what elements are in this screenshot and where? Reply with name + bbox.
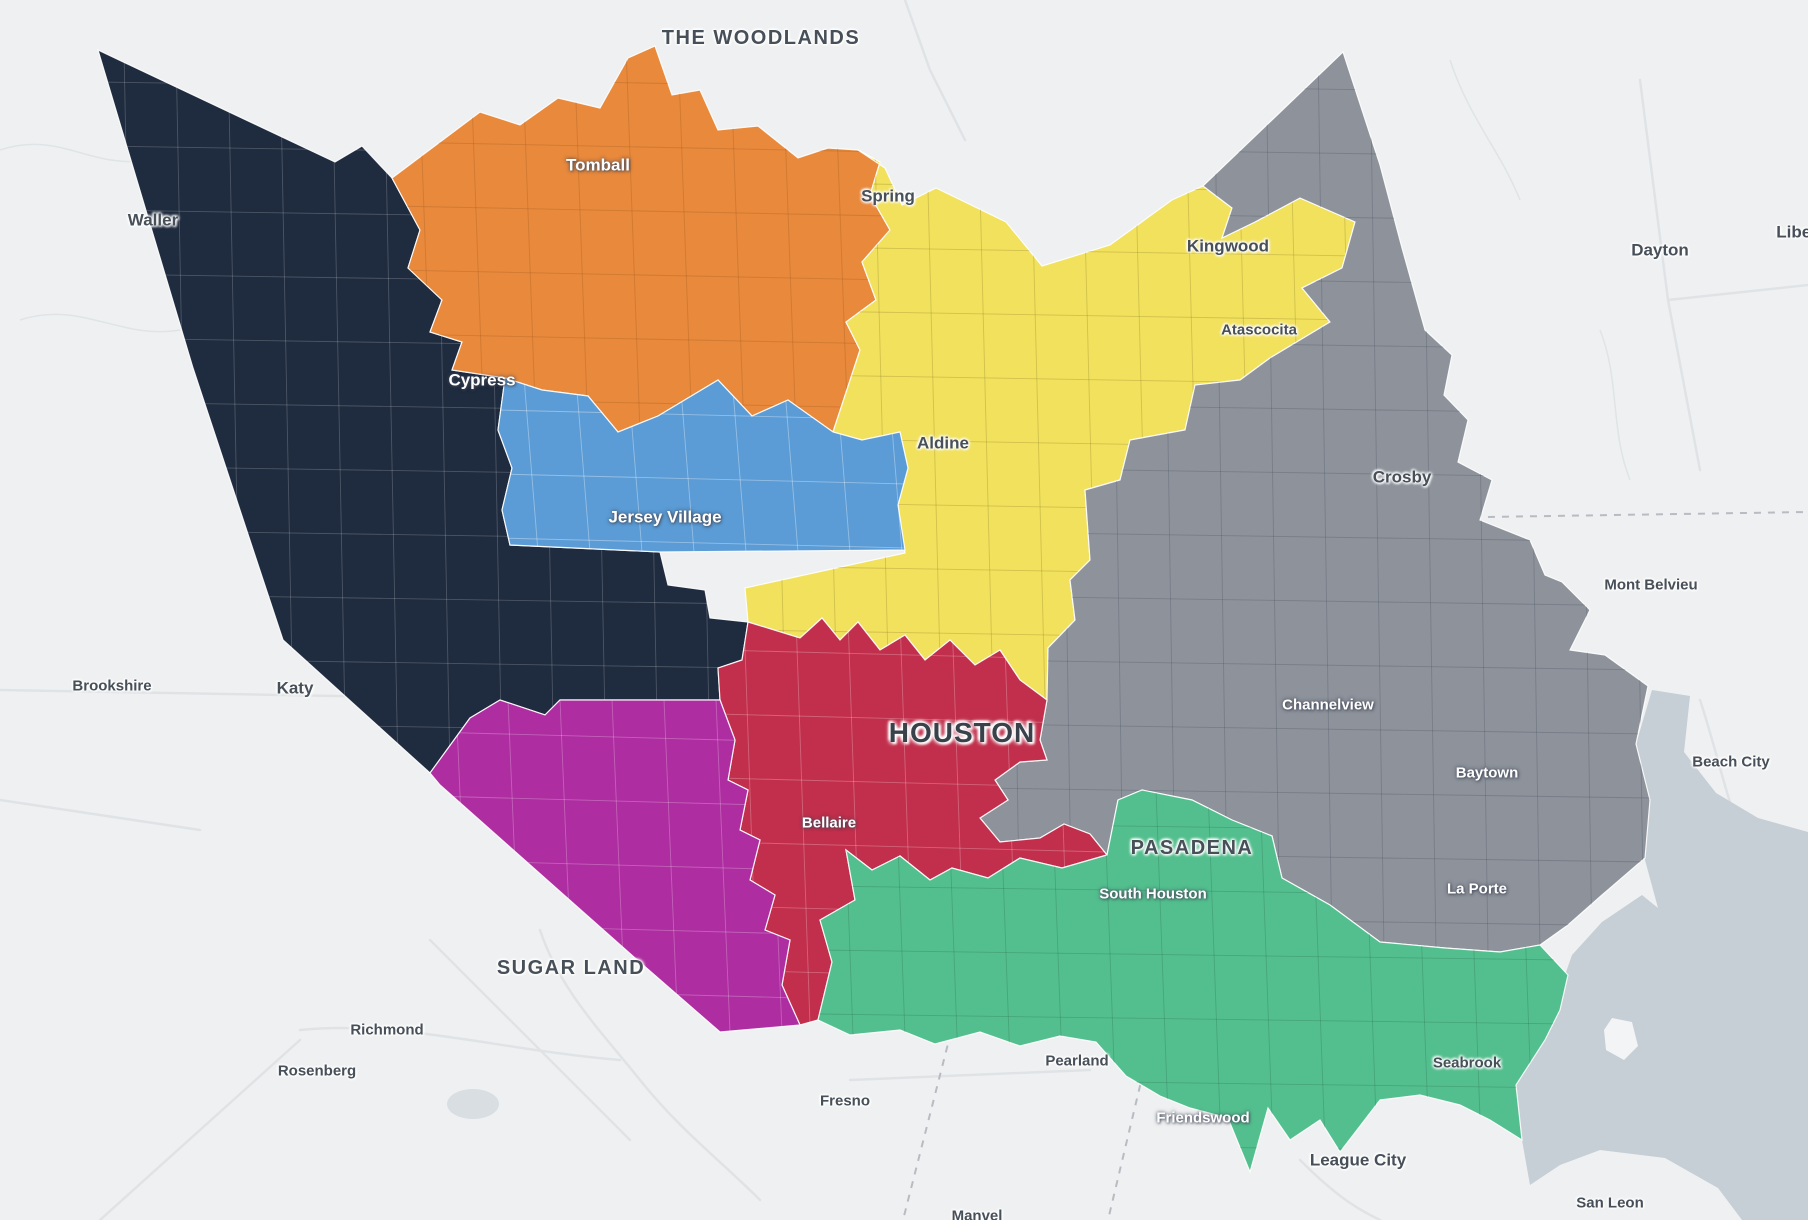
map-stage: THE WOODLANDSWallerTomballSpringKingwood… [0, 0, 1808, 1220]
map-canvas [0, 0, 1808, 1220]
pond [447, 1089, 499, 1119]
